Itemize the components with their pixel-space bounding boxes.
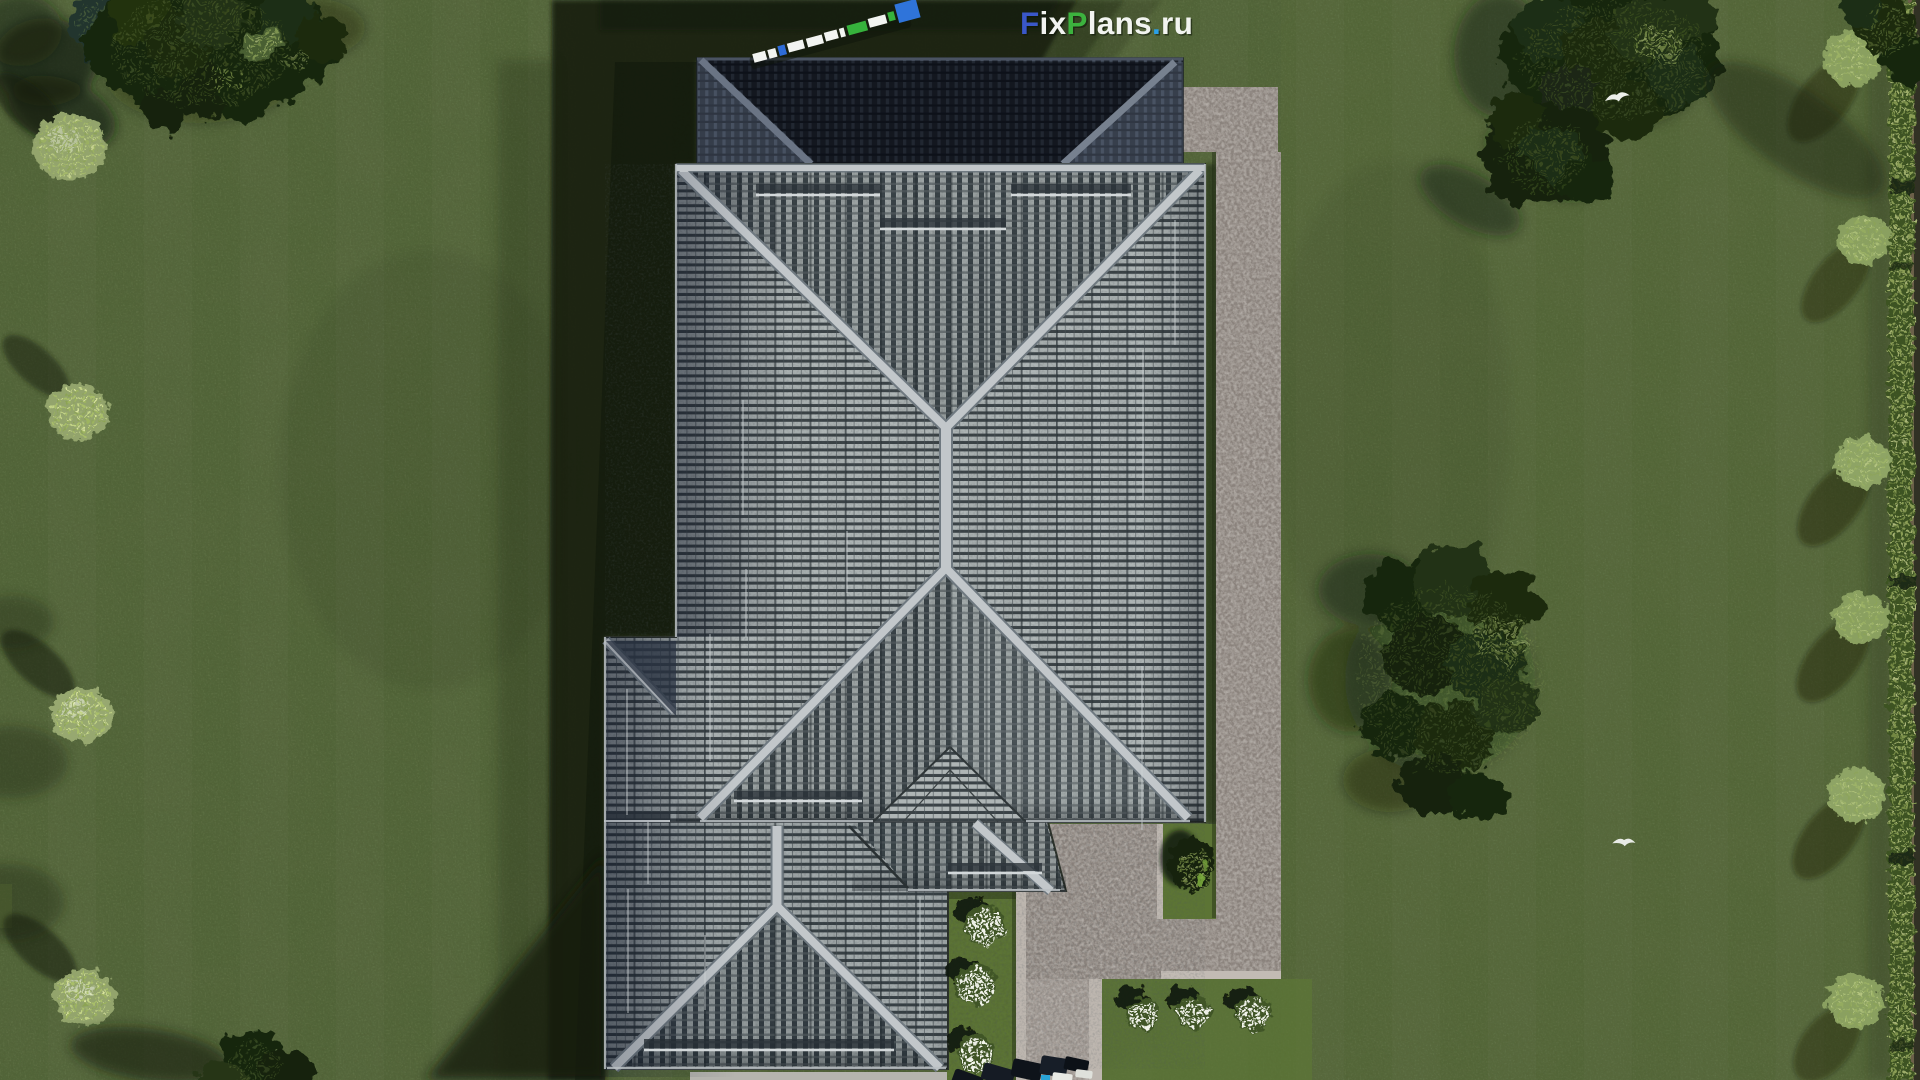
- svg-text:FixPlans.ru: FixPlans.ru: [1020, 5, 1193, 41]
